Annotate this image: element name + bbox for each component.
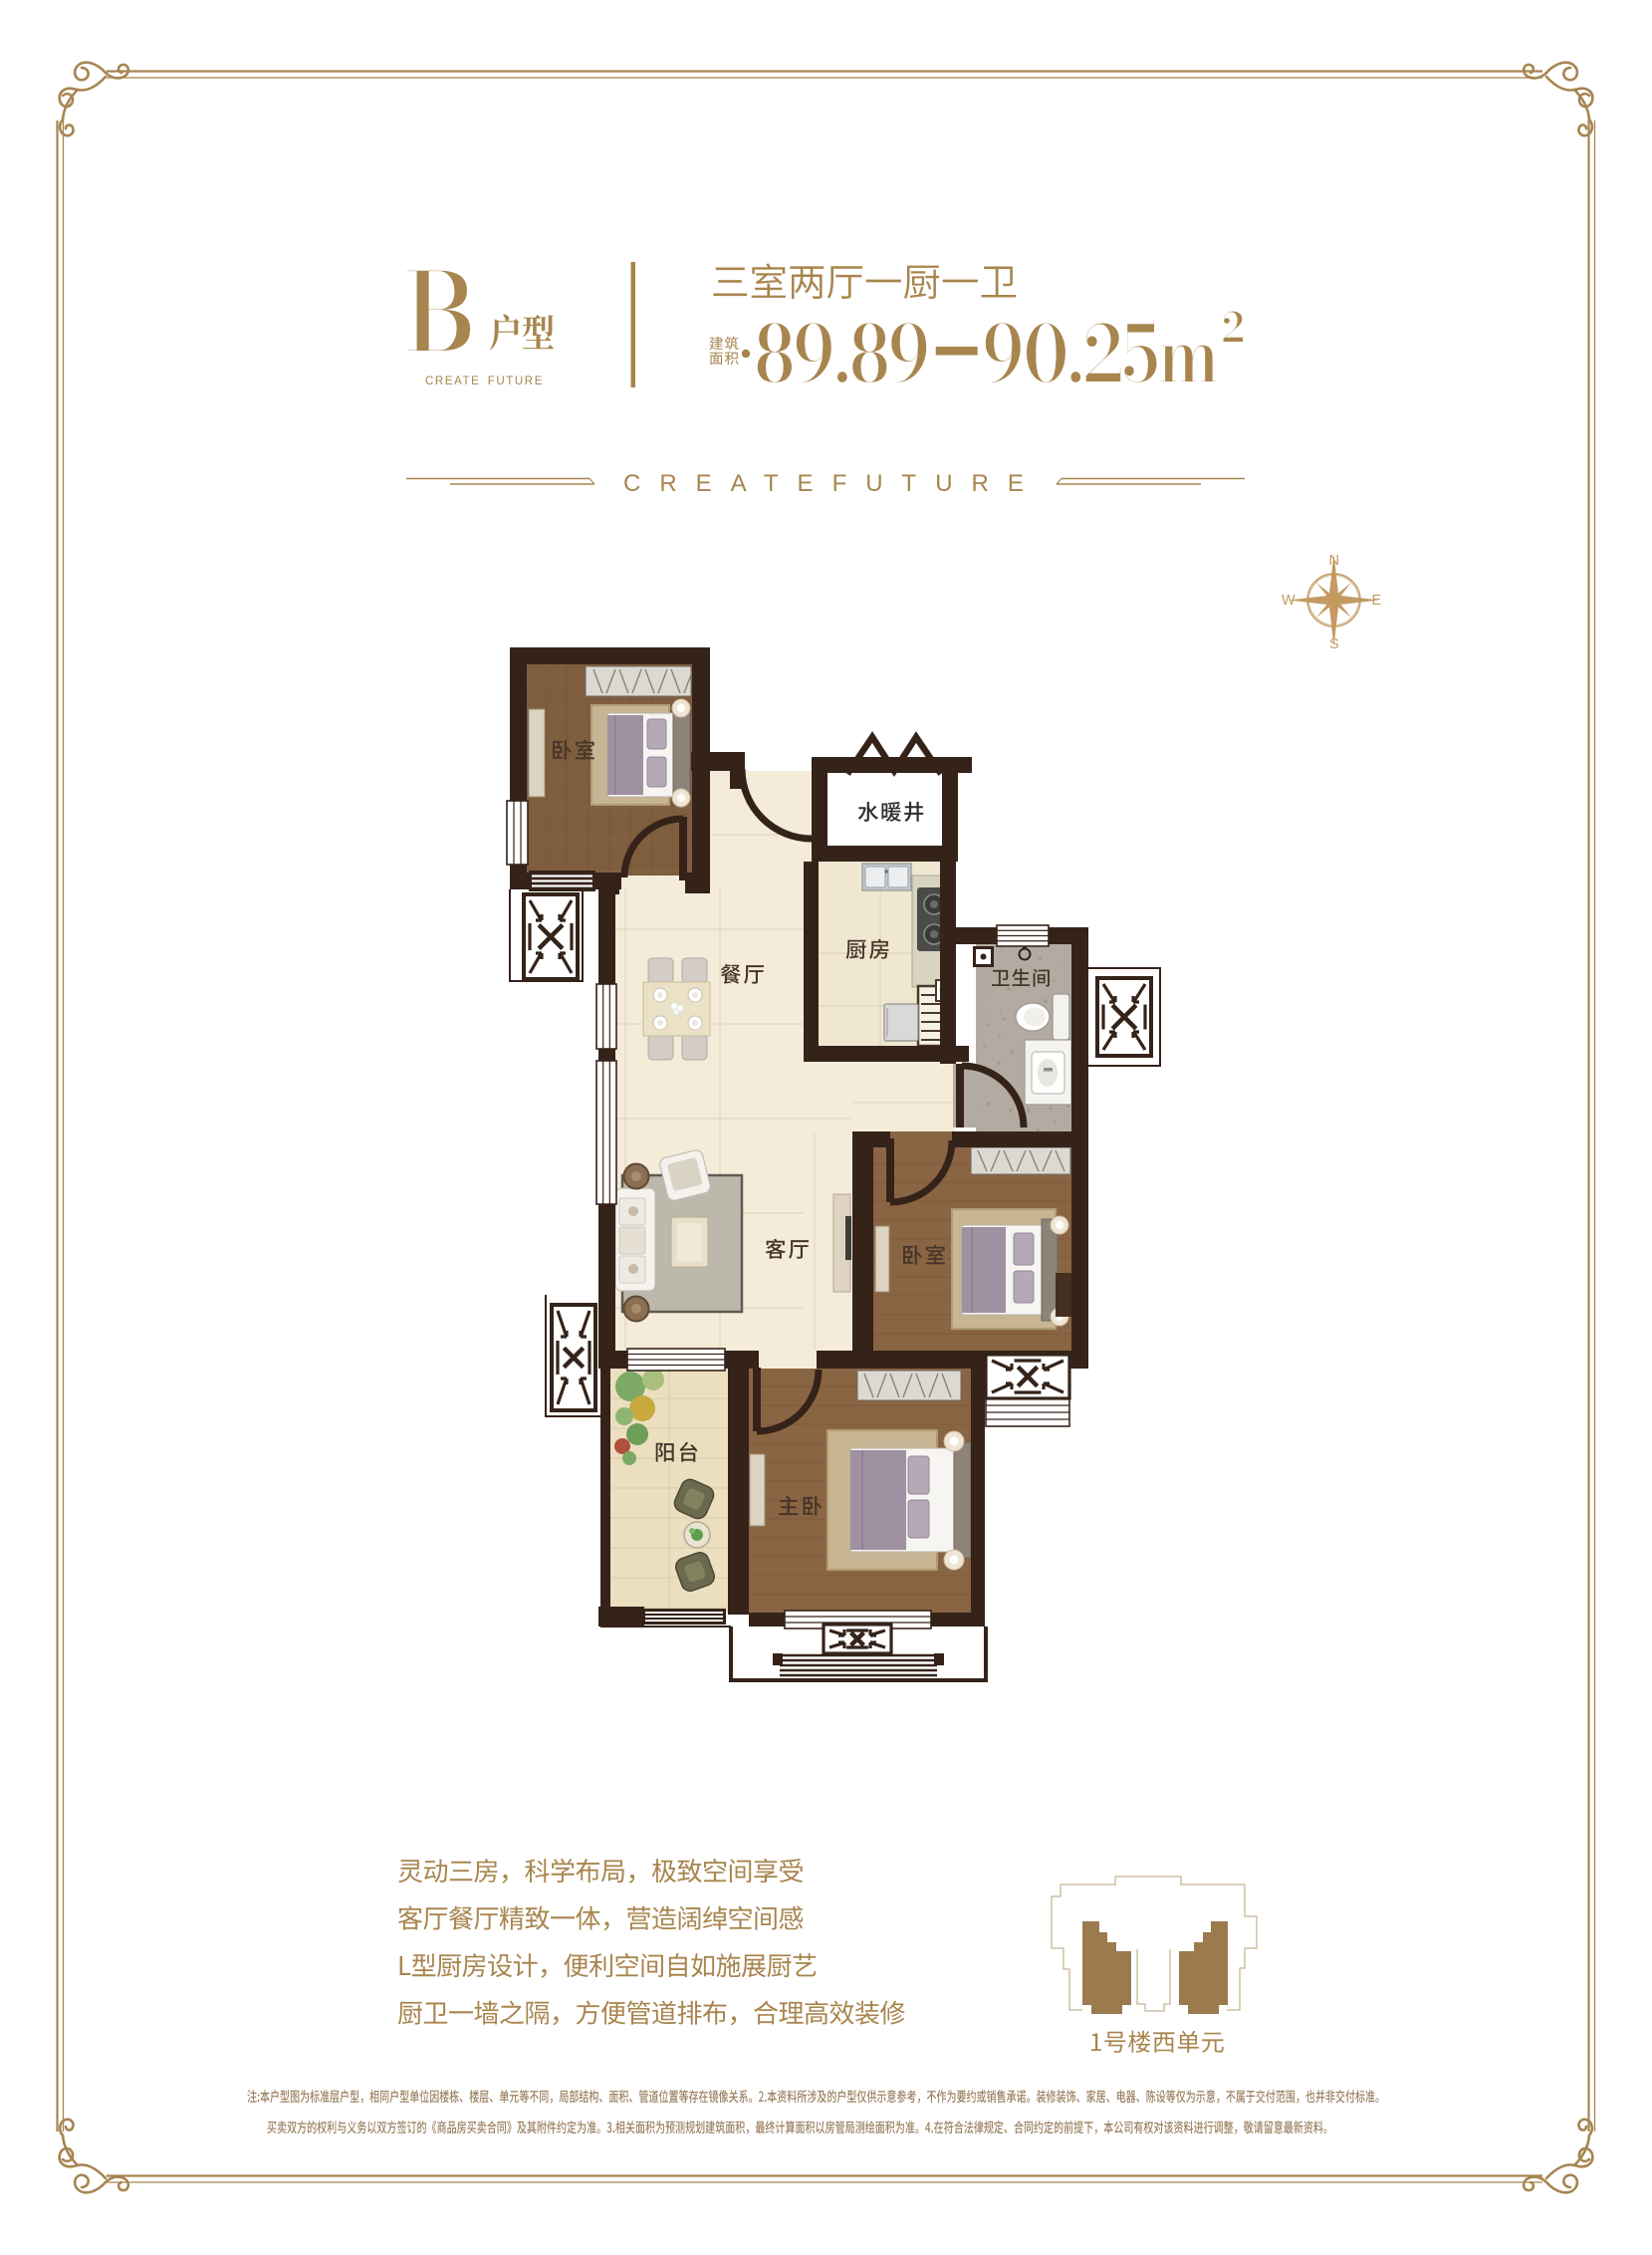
svg-text:CREATE FUTURE: CREATE FUTURE bbox=[425, 376, 544, 387]
svg-text:S: S bbox=[1329, 636, 1339, 652]
svg-text:E: E bbox=[1372, 593, 1382, 609]
svg-text:CREATEFUTURE: CREATEFUTURE bbox=[623, 470, 1043, 497]
svg-text:W: W bbox=[1282, 593, 1296, 609]
svg-text:N: N bbox=[1329, 553, 1339, 569]
